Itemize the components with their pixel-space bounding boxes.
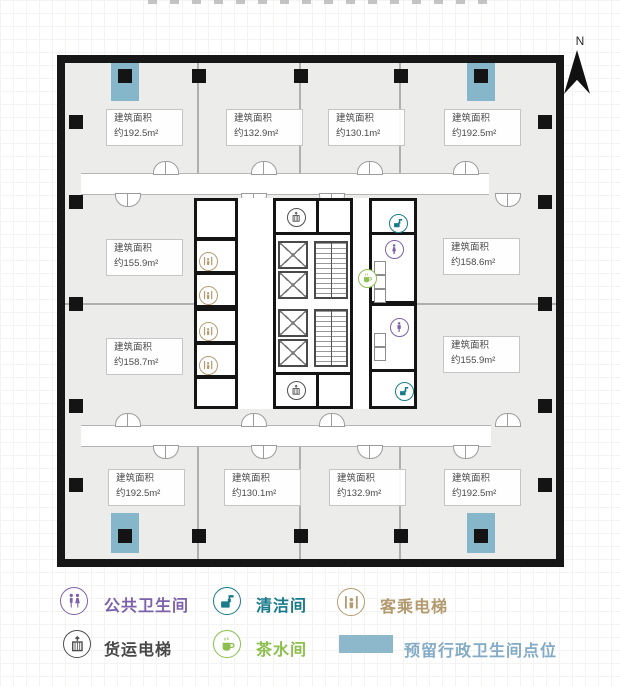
door-swing-icon	[253, 413, 267, 427]
column	[394, 529, 408, 543]
elevator-shaft	[278, 339, 308, 367]
core-wall	[276, 232, 350, 235]
door-swing-icon	[465, 161, 479, 175]
north-arrow-icon	[564, 50, 590, 94]
room-area-label: 建筑面积约130.1m²	[224, 469, 301, 506]
column	[474, 69, 488, 83]
column	[192, 529, 206, 543]
freight-elevator-icon	[287, 208, 306, 227]
corridor-top	[81, 173, 489, 195]
room-area-label: 建筑面积约158.6m²	[443, 238, 520, 275]
elevator-shaft	[278, 271, 308, 299]
door-swing-icon	[263, 445, 277, 459]
floor-plan: 建筑面积约192.5m² 建筑面积约132.9m² 建筑面积约130.1m² 建…	[57, 55, 564, 567]
room-area-label: 建筑面积约192.5m²	[444, 109, 521, 146]
column	[192, 69, 206, 83]
passenger-elevator-icon	[199, 286, 218, 305]
legend-label-cleaning-room: 清洁间	[256, 592, 307, 616]
door-swing-icon	[369, 445, 383, 459]
partition-wall	[65, 303, 194, 305]
column	[118, 69, 132, 83]
corridor-bottom	[81, 425, 491, 447]
column	[538, 478, 552, 492]
passenger-elevator-icon	[199, 252, 218, 271]
toilet-stall	[374, 347, 386, 361]
cropped-title-remnant	[148, 0, 500, 4]
reserved-restroom-swatch	[339, 635, 393, 653]
passenger-elevator-icon	[199, 356, 218, 375]
legend-label-freight-elevator: 货运电梯	[104, 636, 172, 660]
womens-restroom-icon	[385, 240, 404, 259]
cleaning-room-icon	[395, 382, 414, 401]
column	[69, 297, 83, 311]
toilet-stall	[374, 333, 386, 347]
door-swing-icon	[331, 413, 345, 427]
core-wall	[372, 369, 414, 372]
mens-restroom-icon	[390, 318, 409, 337]
column	[538, 115, 552, 129]
passenger-elevator-icon	[199, 322, 218, 341]
core-wall	[316, 201, 319, 232]
door-swing-icon	[165, 161, 179, 175]
core-wall	[372, 232, 414, 235]
core-cell	[197, 379, 235, 406]
column	[69, 399, 83, 413]
freight-elevator-icon	[287, 381, 306, 400]
column	[118, 529, 132, 543]
core-wall	[316, 375, 319, 406]
toilet-stall	[374, 289, 386, 303]
room-area-label: 建筑面积约158.7m²	[106, 338, 183, 375]
partition-wall	[417, 303, 556, 305]
tea-room-icon	[213, 630, 241, 658]
column	[69, 195, 83, 209]
elevator-shaft	[278, 309, 308, 337]
door-swing-icon	[127, 193, 141, 207]
column	[294, 529, 308, 543]
column	[538, 195, 552, 209]
column	[538, 297, 552, 311]
room-area-label: 建筑面积约130.1m²	[328, 109, 405, 146]
room-area-label: 建筑面积约192.5m²	[444, 469, 521, 506]
door-swing-icon	[507, 193, 521, 207]
core-wall	[276, 372, 350, 375]
north-label: N	[567, 34, 593, 48]
column	[69, 478, 83, 492]
core-middle-block	[273, 198, 353, 409]
door-swing-icon	[369, 161, 383, 175]
column	[69, 115, 83, 129]
room-area-label: 建筑面积约155.9m²	[106, 239, 183, 276]
public-restroom-icon	[60, 587, 88, 615]
door-swing-icon	[507, 413, 521, 427]
cleaning-room-icon	[213, 587, 241, 615]
column	[474, 529, 488, 543]
passenger-elevator-bank	[194, 198, 238, 409]
door-swing-icon	[165, 445, 179, 459]
legend-label-tea-room: 茶水间	[256, 636, 307, 660]
door-swing-icon	[127, 413, 141, 427]
core-cell	[197, 201, 235, 237]
column	[538, 399, 552, 413]
column	[394, 69, 408, 83]
room-area-label: 建筑面积约155.9m²	[443, 336, 520, 373]
legend-label-passenger-elevator: 客乘电梯	[380, 593, 448, 617]
passenger-elevator-icon	[337, 588, 365, 616]
cleaning-room-icon	[389, 214, 408, 233]
legend-label-reserved-restroom: 预留行政卫生间点位	[404, 637, 557, 661]
room-area-label: 建筑面积约132.9m²	[329, 469, 406, 506]
room-area-label: 建筑面积约132.9m²	[226, 109, 303, 146]
door-swing-icon	[263, 161, 277, 175]
tea-room-icon	[358, 269, 377, 288]
freight-elevator-icon	[63, 630, 91, 658]
staircase	[314, 241, 348, 299]
door-swing-icon	[465, 445, 479, 459]
room-area-label: 建筑面积约192.5m²	[106, 109, 183, 146]
column	[294, 69, 308, 83]
legend-label-public-restroom: 公共卫生间	[104, 592, 189, 616]
staircase	[314, 309, 348, 367]
room-area-label: 建筑面积约192.5m²	[108, 469, 185, 506]
elevator-shaft	[278, 241, 308, 269]
